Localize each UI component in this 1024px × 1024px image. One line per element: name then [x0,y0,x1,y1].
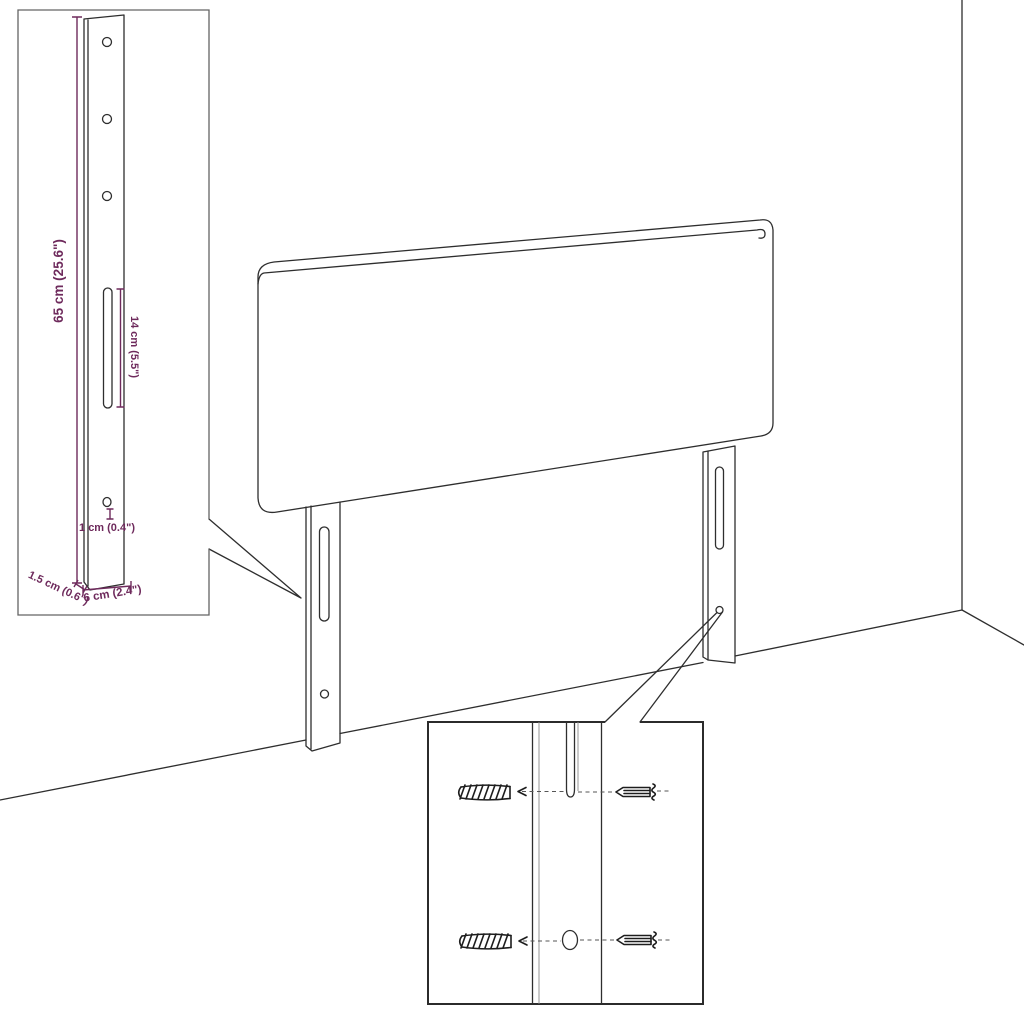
left-leg-slot [320,527,330,621]
wall-plug-icon [616,784,655,800]
hole-dim-label: 1 cm (0.4") [79,522,135,534]
thickness-dim-label: 1.5 cm (0.6") [26,569,90,608]
headboard-dimension-diagram: 65 cm (25.6") 14 cm (5.5") 1 cm (0.4") 1… [0,0,1024,1024]
right-leg-slot [716,467,724,549]
height-dim-line [72,17,82,583]
detail-border [428,722,703,1004]
dimension-inset-panel: 65 cm (25.6") 14 cm (5.5") 1 cm (0.4") 1… [18,10,209,615]
hole-dim-line [107,509,114,519]
left-leg-hole [321,690,329,698]
screw-icon [459,785,510,800]
screw-icon [460,934,511,949]
leg-closeup-strip [533,722,602,1004]
detail-zoom-panel [428,722,703,1004]
bracket-slot [104,288,113,408]
headboard-panel-outline [258,220,773,513]
floor-line-left [0,610,962,800]
product-diagram-page: 65 cm (25.6") 14 cm (5.5") 1 cm (0.4") 1… [0,0,1024,1024]
headboard-drawing [258,220,773,513]
right-leg [703,446,735,663]
left-leg [306,502,340,751]
inset-callout-lines [209,519,301,598]
strip-slot [567,722,575,797]
leader-lines [518,788,671,946]
bracket-hole-2 [103,115,112,124]
leg-bracket-drawing [84,15,124,590]
bracket-hole-1 [103,38,112,47]
bracket-small-hole [103,498,111,507]
slot-dim-line [117,289,125,407]
strip-hole [563,931,578,950]
slot-dim-label: 14 cm (5.5") [128,316,140,378]
detail-callout-lines [605,612,723,722]
dimension-lines [72,17,131,595]
wall-plug-icon [617,932,656,948]
height-dim-label: 65 cm (25.6") [51,239,66,323]
floor-line-right [962,610,1024,645]
wall-corner-lines [0,0,1024,800]
bracket-hole-3 [103,192,112,201]
